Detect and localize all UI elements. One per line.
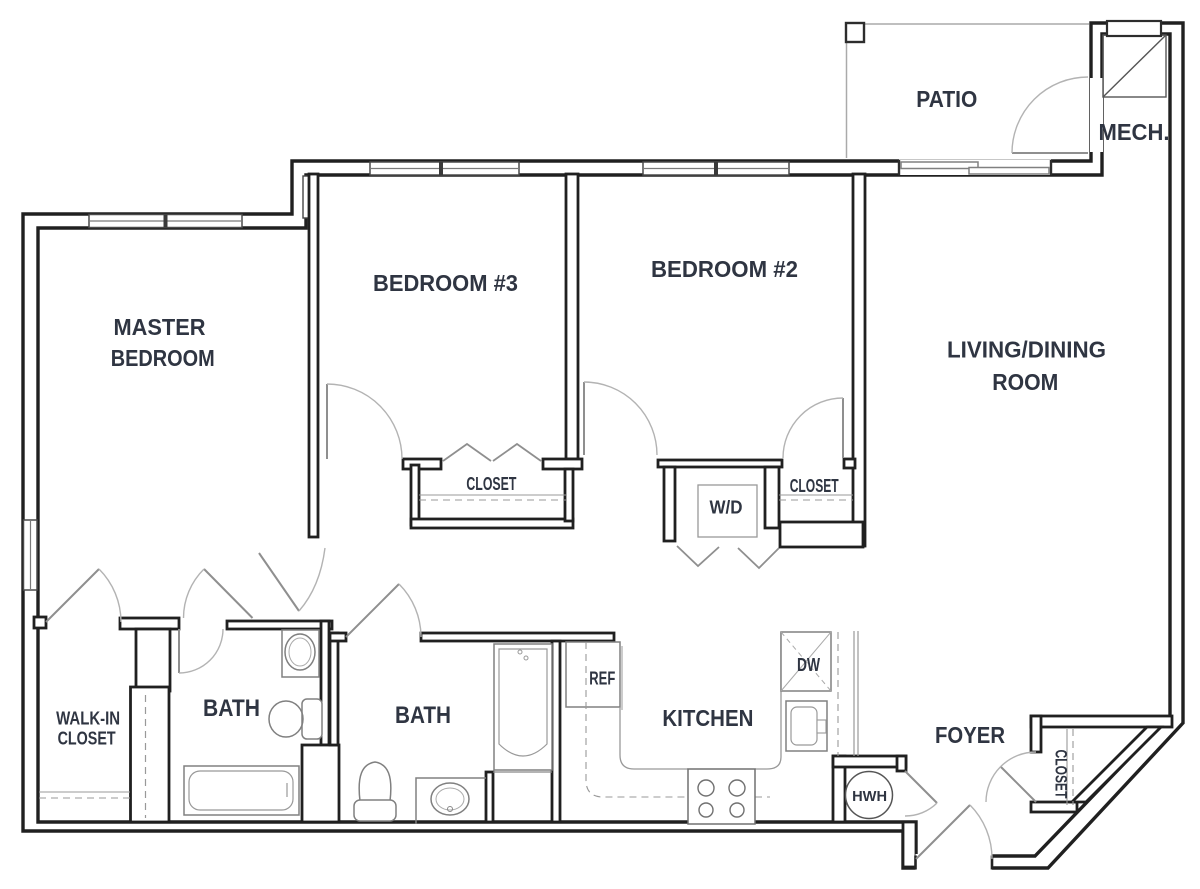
svg-text:KITCHEN: KITCHEN [662,705,753,731]
svg-text:ROOM: ROOM [992,369,1058,395]
svg-text:BATH: BATH [395,702,451,729]
svg-text:WALK-IN: WALK-IN [56,708,120,728]
svg-text:PATIO: PATIO [916,86,977,112]
svg-text:FOYER: FOYER [935,722,1005,748]
svg-text:DW: DW [797,655,820,675]
svg-text:REF: REF [589,669,615,689]
svg-text:BEDROOM #3: BEDROOM #3 [373,270,518,296]
svg-text:MECH.: MECH. [1099,119,1170,145]
svg-text:BEDROOM: BEDROOM [111,345,215,371]
svg-text:CLOSET: CLOSET [58,729,116,749]
svg-text:CLOSET: CLOSET [466,474,516,494]
svg-text:MASTER: MASTER [114,314,206,340]
svg-text:BEDROOM #2: BEDROOM #2 [651,256,798,282]
svg-text:CLOSET: CLOSET [790,476,839,496]
svg-text:HWH: HWH [852,789,887,805]
svg-text:LIVING/DINING: LIVING/DINING [947,337,1106,363]
svg-text:CLOSET: CLOSET [1052,750,1071,799]
svg-text:BATH: BATH [203,695,260,722]
svg-text:W/D: W/D [710,497,743,517]
